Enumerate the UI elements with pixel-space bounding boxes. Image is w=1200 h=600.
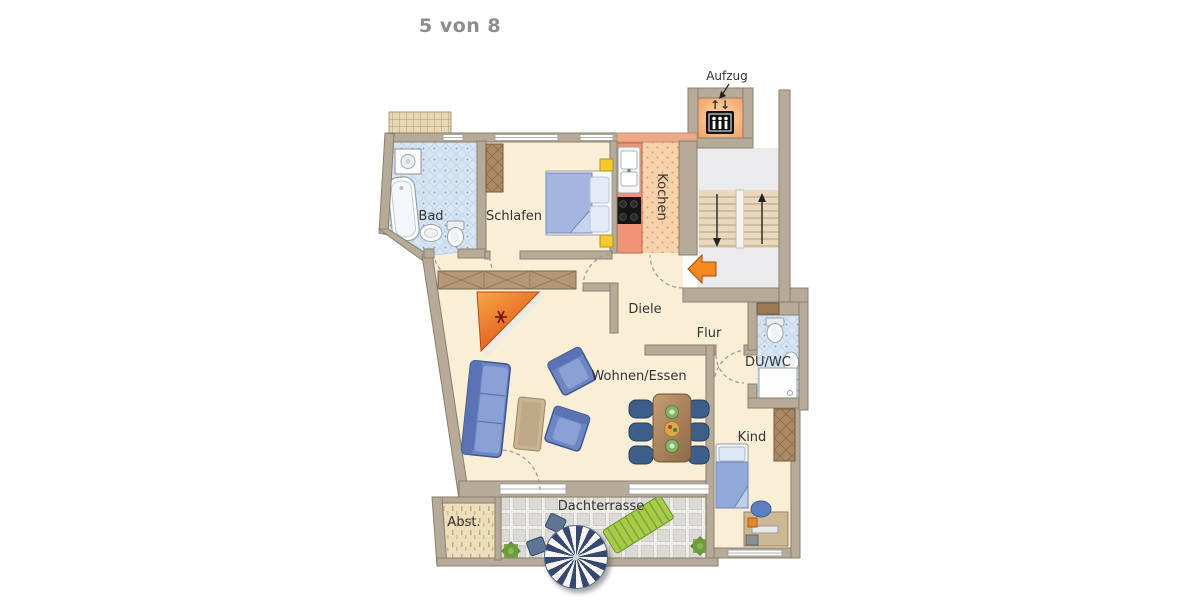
parasol — [544, 525, 608, 589]
bedroom-wardrobe — [486, 144, 503, 192]
dining-set — [629, 394, 709, 464]
hallway-wardrobe — [438, 271, 576, 289]
bath-toilet — [447, 221, 464, 247]
label-diele: Diele — [628, 302, 661, 317]
label-kochen: Kochen — [654, 173, 669, 220]
bath-sink — [420, 225, 442, 242]
screenshot-canvas: 5 von 8 — [0, 0, 1200, 600]
roof-hatch-strip — [389, 112, 451, 133]
elevator-people-icon — [706, 111, 734, 134]
label-duwc: DU/WC — [745, 355, 791, 370]
dining-chair — [629, 423, 653, 441]
coffee-table — [513, 397, 545, 452]
label-dachterrasse: Dachterrasse — [558, 499, 644, 514]
nightstand — [600, 235, 613, 247]
dining-chair — [629, 400, 653, 418]
label-kind: Kind — [738, 430, 767, 445]
floorplan-svg: ↑↓ — [0, 0, 1200, 600]
label-aufzug: Aufzug — [706, 69, 748, 83]
child-bed — [716, 444, 748, 508]
floorplan-image[interactable]: ↑↓ — [0, 0, 1200, 600]
label-wohnen-essen: Wohnen/Essen — [591, 369, 686, 384]
kitchen-sink — [618, 147, 640, 193]
elevator-arrows-icon: ↑↓ — [710, 98, 730, 112]
label-flur: Flur — [697, 326, 722, 341]
wc-toilet — [766, 318, 784, 343]
storage-floor — [441, 500, 495, 560]
washing-machine — [395, 149, 421, 174]
nightstand — [600, 159, 613, 171]
stair-flight-up — [744, 190, 781, 248]
kitchen-stove — [616, 197, 641, 224]
stair-divider-wall — [736, 190, 744, 248]
stair-flight-down — [699, 190, 736, 248]
shower — [759, 368, 797, 398]
desk-chair — [751, 501, 771, 517]
dining-chair — [629, 446, 653, 464]
label-schlafen: Schlafen — [486, 209, 542, 224]
fruit-bowl — [665, 422, 680, 437]
child-wardrobe — [774, 409, 795, 461]
double-bed — [546, 159, 613, 247]
label-abst: Abst. — [447, 515, 480, 530]
corridor-cabinet — [757, 303, 779, 314]
label-bad: Bad — [418, 209, 443, 224]
